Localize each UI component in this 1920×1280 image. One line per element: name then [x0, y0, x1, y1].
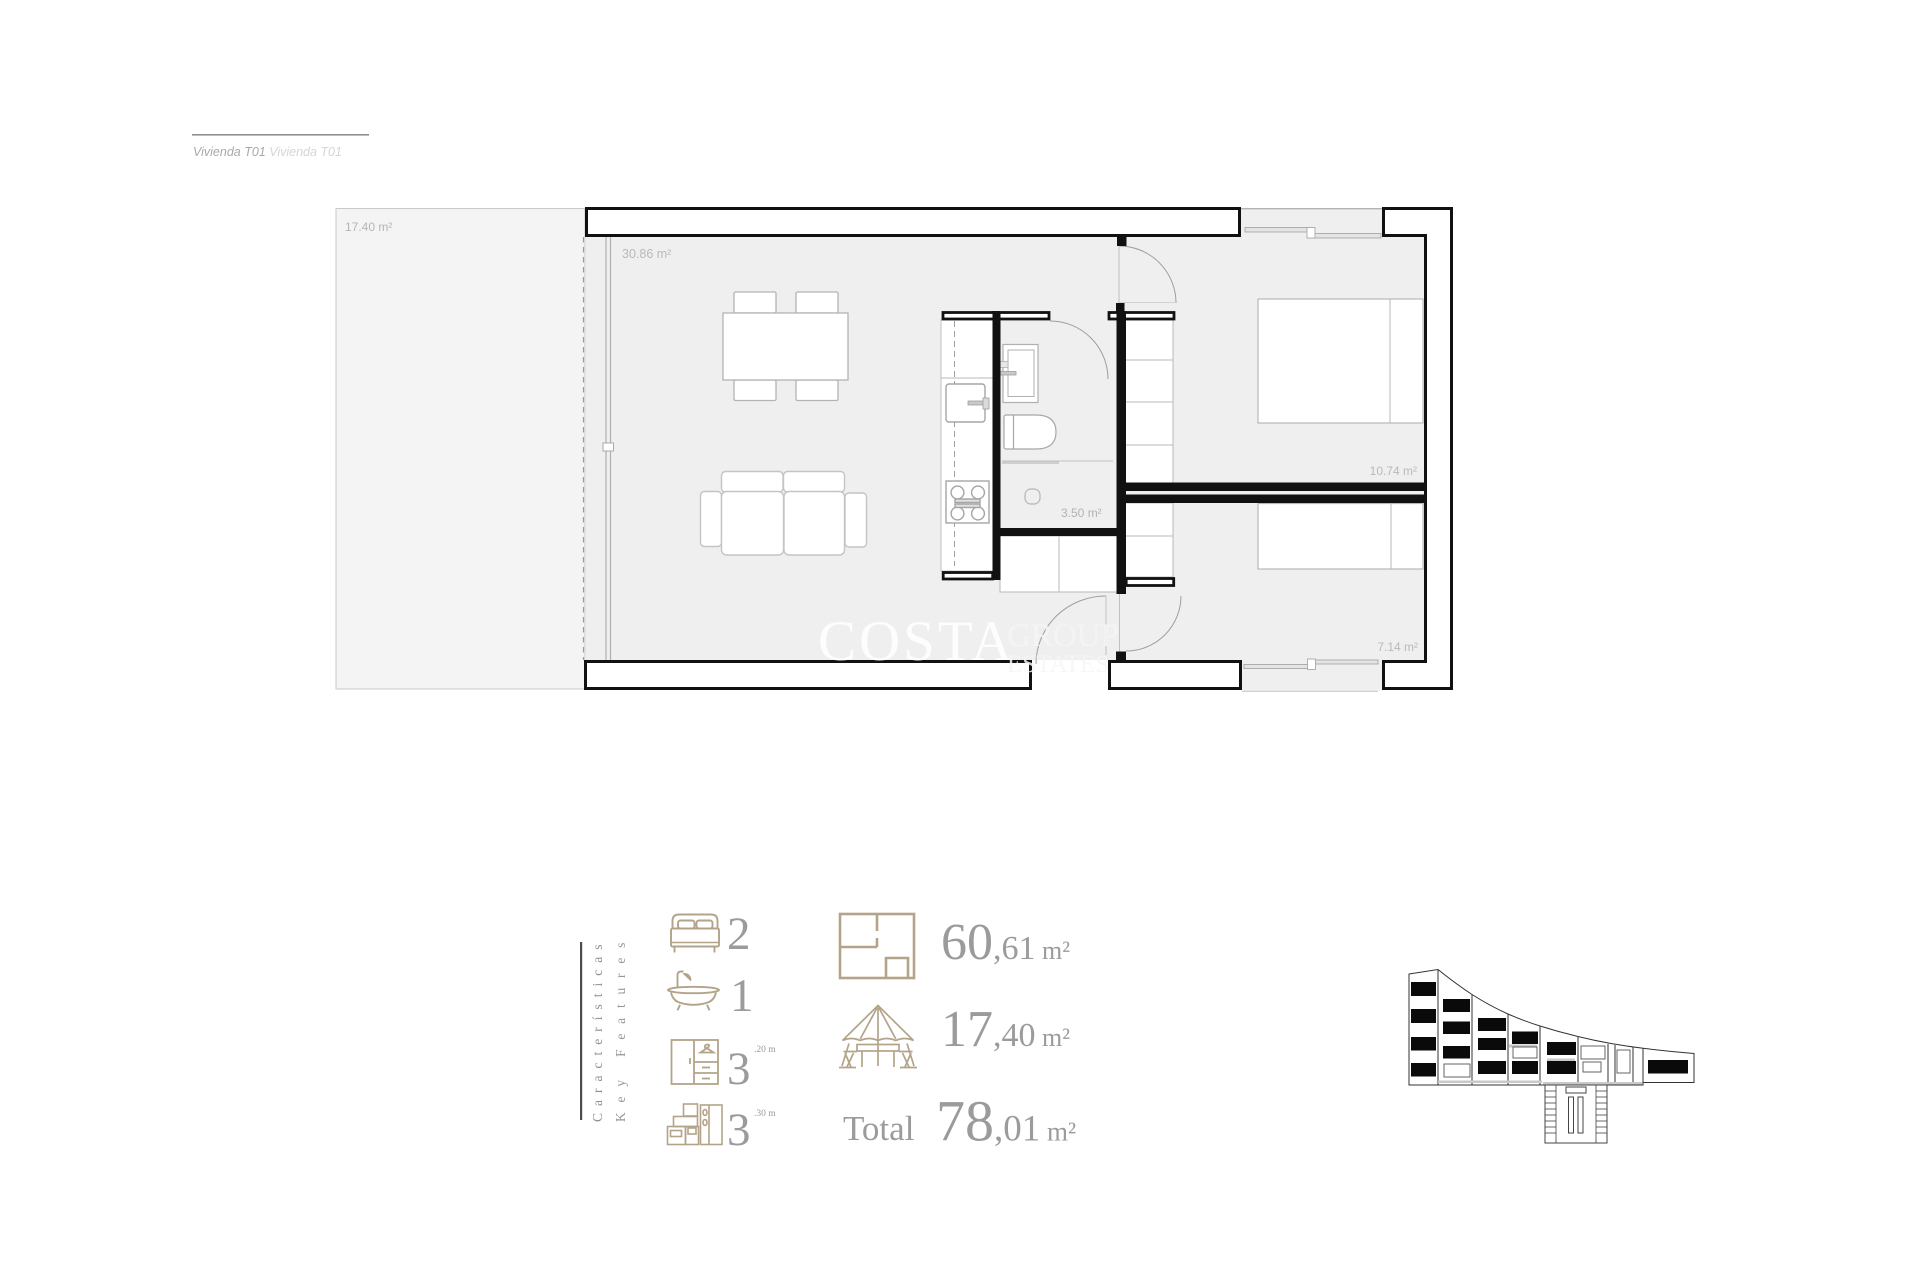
svg-text:10.74 m²: 10.74 m²	[1370, 464, 1417, 478]
svg-text:3.50 m²: 3.50 m²	[1061, 506, 1102, 520]
svg-text:1: 1	[730, 970, 754, 1022]
svg-text:2: 2	[727, 908, 751, 960]
svg-text:7.14 m²: 7.14 m²	[1377, 640, 1418, 654]
svg-text:17.40 m²: 17.40 m²	[345, 220, 392, 234]
svg-text:3: 3	[727, 1104, 751, 1156]
svg-text:Vivienda T01 Vivienda T01: Vivienda T01 Vivienda T01	[193, 145, 342, 159]
svg-text:Características: Características	[590, 938, 605, 1122]
svg-text:COSTA: COSTA	[818, 610, 1015, 673]
svg-text:.30 m: .30 m	[754, 1109, 776, 1119]
svg-text:GROUP: GROUP	[1007, 618, 1119, 654]
svg-text:Total: Total	[843, 1109, 915, 1148]
svg-text:30.86 m²: 30.86 m²	[622, 247, 671, 261]
svg-text:ESTATES: ESTATES	[1007, 651, 1109, 678]
svg-text:.20 m: .20 m	[754, 1045, 776, 1055]
svg-text:3: 3	[727, 1043, 751, 1095]
svg-text:Key Features: Key Features	[613, 933, 628, 1122]
